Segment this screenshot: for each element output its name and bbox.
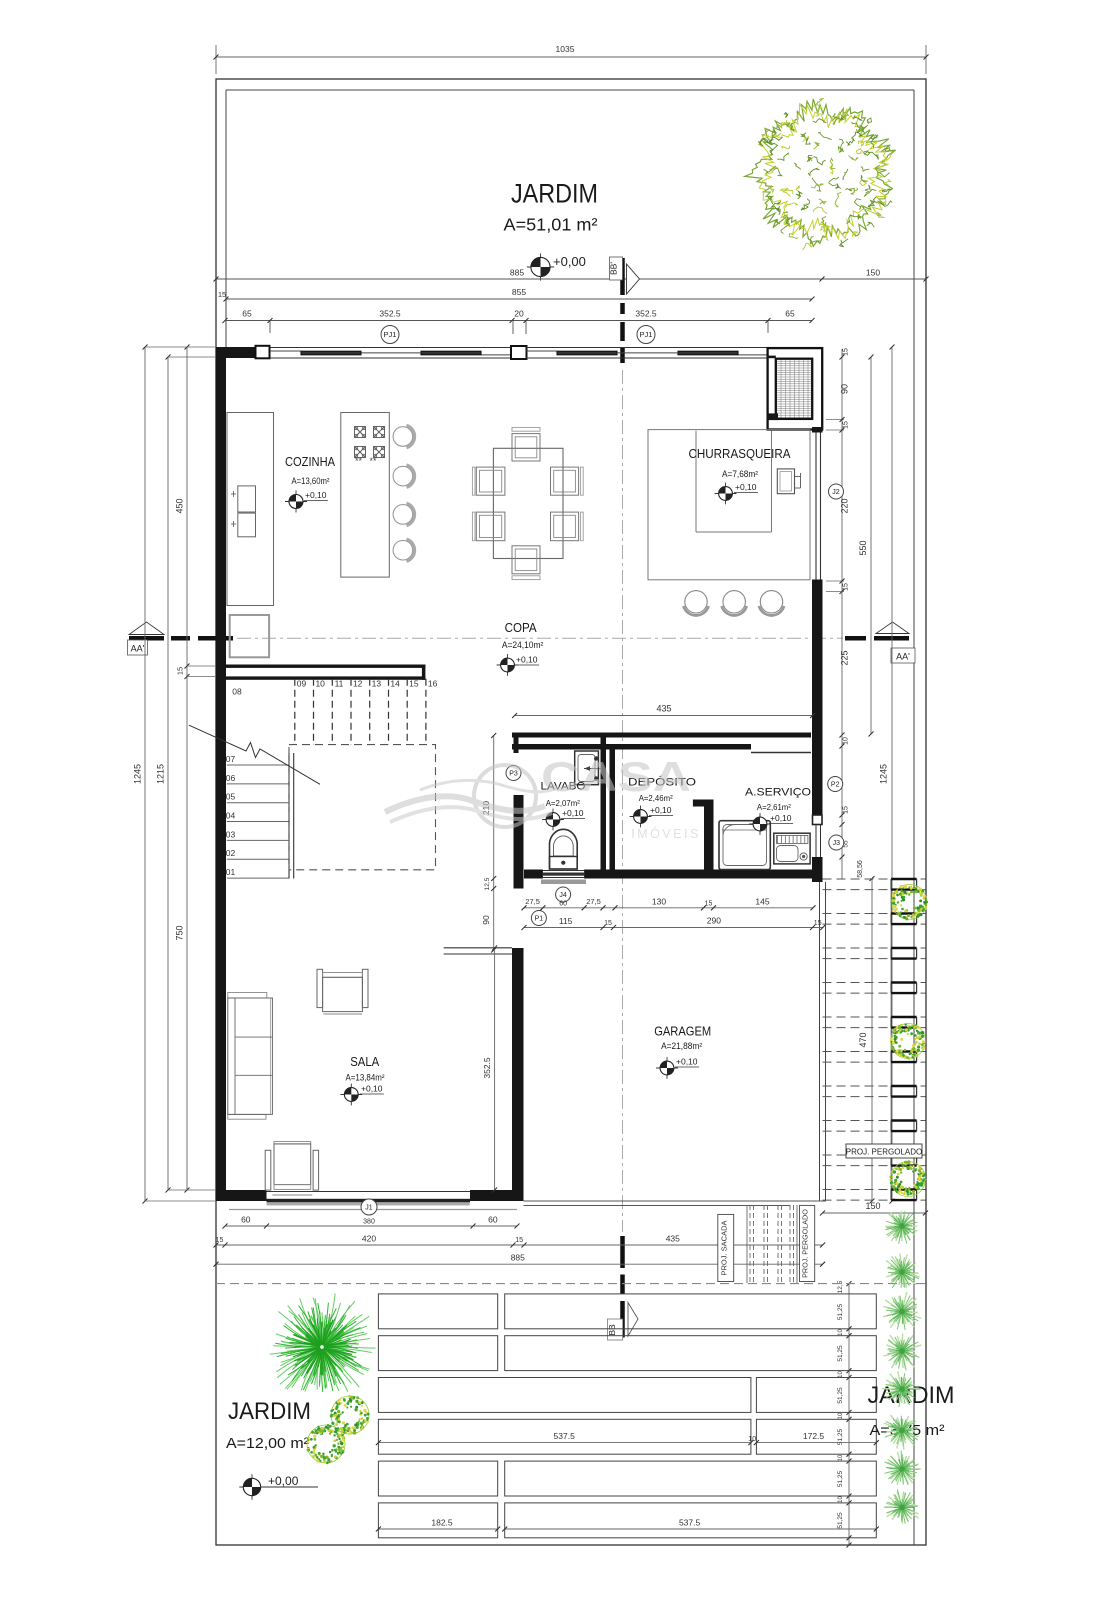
svg-text:15: 15 — [814, 920, 822, 927]
svg-text:15: 15 — [705, 901, 713, 908]
svg-text:537.5: 537.5 — [679, 1518, 701, 1528]
svg-text:150: 150 — [865, 1201, 880, 1211]
svg-text:470: 470 — [858, 1032, 868, 1047]
svg-text:**: ** — [355, 456, 363, 466]
svg-text:51,25: 51,25 — [837, 1387, 844, 1404]
svg-text:JARDIM: JARDIM — [511, 179, 598, 209]
svg-text:J3: J3 — [833, 840, 841, 847]
svg-text:1245: 1245 — [133, 764, 143, 784]
svg-text:352.5: 352.5 — [482, 1057, 492, 1079]
svg-text:27,5: 27,5 — [586, 897, 601, 906]
svg-text:65: 65 — [242, 309, 252, 319]
svg-text:02: 02 — [226, 848, 236, 858]
svg-text:05: 05 — [226, 792, 236, 802]
svg-text:51,25: 51,25 — [837, 1512, 844, 1529]
svg-text:07: 07 — [226, 754, 236, 764]
svg-text:750: 750 — [175, 925, 185, 940]
svg-text:+0,00: +0,00 — [268, 1474, 299, 1488]
svg-text:01: 01 — [226, 867, 236, 877]
svg-text:A=21,88m²: A=21,88m² — [661, 1041, 702, 1051]
svg-text:65: 65 — [785, 309, 795, 319]
svg-text:A.SERVIÇO: A.SERVIÇO — [745, 787, 811, 799]
svg-text:20: 20 — [514, 309, 524, 319]
svg-text:08: 08 — [232, 687, 242, 697]
svg-text:+0,10: +0,10 — [562, 808, 584, 818]
svg-text:CASA: CASA — [541, 753, 691, 800]
svg-text:13: 13 — [372, 679, 382, 689]
svg-text:IMÓVEIS: IMÓVEIS — [631, 826, 701, 841]
svg-text:435: 435 — [666, 1234, 680, 1244]
svg-text:+0,10: +0,10 — [650, 805, 672, 815]
svg-text:AA': AA' — [131, 644, 145, 654]
svg-text:58,56: 58,56 — [857, 860, 864, 878]
svg-text:+0,10: +0,10 — [770, 813, 792, 823]
svg-text:PJ1: PJ1 — [640, 330, 653, 339]
svg-text:51,25: 51,25 — [837, 1345, 844, 1362]
svg-text:225: 225 — [840, 650, 850, 665]
svg-text:J4: J4 — [559, 892, 567, 899]
svg-text:09: 09 — [297, 679, 307, 689]
svg-text:GARAGEM: GARAGEM — [654, 1024, 711, 1039]
svg-text:90: 90 — [840, 384, 850, 394]
svg-text:115: 115 — [559, 916, 573, 926]
svg-text:10: 10 — [748, 1436, 756, 1443]
svg-text:PROJ. PERGOLADO: PROJ. PERGOLADO — [801, 1209, 810, 1278]
svg-text:12: 12 — [353, 679, 363, 689]
svg-text:12,5: 12,5 — [484, 877, 491, 890]
svg-text:+0,10: +0,10 — [676, 1057, 698, 1067]
svg-text:60: 60 — [559, 901, 567, 908]
svg-text:450: 450 — [175, 498, 185, 513]
svg-text:10: 10 — [838, 1496, 844, 1503]
svg-text:P1: P1 — [535, 916, 544, 923]
svg-text:SALA: SALA — [350, 1054, 379, 1069]
svg-text:15: 15 — [843, 348, 850, 356]
svg-text:J1: J1 — [365, 1205, 373, 1212]
svg-text:855: 855 — [512, 287, 526, 297]
svg-text:10: 10 — [843, 737, 850, 745]
svg-text:537.5: 537.5 — [554, 1431, 576, 1441]
svg-text:15: 15 — [409, 679, 419, 689]
svg-text:A=13,60m²: A=13,60m² — [292, 476, 330, 486]
svg-text:PROJ. PERGOLADO: PROJ. PERGOLADO — [846, 1148, 922, 1157]
svg-text:PJ1: PJ1 — [384, 330, 397, 339]
svg-text:10: 10 — [315, 679, 325, 689]
svg-text:**: ** — [369, 456, 377, 466]
svg-text:J2: J2 — [832, 489, 840, 496]
svg-text:290: 290 — [707, 916, 721, 926]
svg-text:380: 380 — [363, 1219, 375, 1226]
svg-text:1245: 1245 — [879, 764, 889, 784]
svg-text:435: 435 — [656, 704, 671, 714]
svg-text:COPA: COPA — [505, 620, 537, 635]
svg-text:60: 60 — [241, 1215, 251, 1225]
svg-text:51,25: 51,25 — [837, 1303, 844, 1320]
svg-text:04: 04 — [226, 811, 236, 821]
svg-text:1035: 1035 — [556, 44, 575, 54]
svg-text:A=2,61m²: A=2,61m² — [757, 802, 791, 812]
svg-text:15: 15 — [216, 1237, 224, 1244]
svg-text:BB': BB' — [609, 262, 619, 275]
svg-text:16: 16 — [428, 679, 438, 689]
svg-text:885: 885 — [510, 268, 524, 278]
svg-text:11: 11 — [335, 679, 344, 689]
svg-text:27,5: 27,5 — [525, 897, 540, 906]
svg-text:145: 145 — [755, 897, 769, 907]
svg-text:+0,10: +0,10 — [516, 655, 538, 665]
svg-text:10: 10 — [838, 1371, 844, 1378]
svg-text:1215: 1215 — [156, 764, 166, 784]
svg-text:A=12,00 m²: A=12,00 m² — [226, 1435, 309, 1452]
svg-text:A=24,10m²: A=24,10m² — [502, 640, 544, 650]
svg-text:+0,10: +0,10 — [361, 1084, 383, 1094]
svg-text:550: 550 — [858, 540, 868, 555]
svg-text:P2: P2 — [831, 782, 840, 789]
svg-text:A=7,68m²: A=7,68m² — [722, 469, 758, 479]
svg-text:172.5: 172.5 — [803, 1431, 825, 1441]
svg-text:14: 14 — [390, 679, 400, 689]
svg-text:PROJ. SACADA: PROJ. SACADA — [719, 1220, 728, 1275]
svg-text:10: 10 — [838, 1329, 844, 1336]
svg-text:90: 90 — [481, 915, 491, 925]
svg-text:P3: P3 — [509, 771, 518, 778]
svg-text:+0,00: +0,00 — [553, 254, 586, 269]
svg-text:352.5: 352.5 — [635, 309, 657, 319]
svg-text:130: 130 — [652, 897, 666, 907]
svg-text:15: 15 — [218, 290, 226, 299]
svg-text:COZINHA: COZINHA — [285, 454, 335, 469]
svg-text:12,5: 12,5 — [837, 1280, 844, 1293]
svg-text:AA': AA' — [896, 652, 910, 662]
svg-text:JARDIM: JARDIM — [228, 1398, 311, 1425]
svg-text:10: 10 — [838, 1412, 844, 1419]
svg-text:15: 15 — [843, 421, 850, 429]
svg-text:CHURRASQUEIRA: CHURRASQUEIRA — [689, 446, 791, 461]
svg-text:150: 150 — [866, 268, 880, 278]
svg-text:60: 60 — [488, 1215, 498, 1225]
svg-text:A=13,84m²: A=13,84m² — [346, 1073, 385, 1083]
svg-text:BB: BB — [607, 1324, 617, 1336]
svg-text:15: 15 — [604, 920, 612, 927]
svg-text:220: 220 — [840, 498, 850, 513]
svg-text:15: 15 — [843, 806, 850, 814]
svg-text:06: 06 — [226, 773, 236, 783]
svg-text:10: 10 — [838, 1454, 844, 1461]
svg-text:51,25: 51,25 — [837, 1470, 844, 1487]
svg-text:352.5: 352.5 — [379, 309, 401, 319]
svg-text:182.5: 182.5 — [431, 1518, 453, 1528]
svg-text:03: 03 — [226, 829, 236, 839]
svg-text:+0,10: +0,10 — [305, 490, 327, 500]
svg-text:+0,10: +0,10 — [735, 482, 757, 492]
svg-text:15: 15 — [843, 583, 850, 591]
svg-text:885: 885 — [511, 1253, 525, 1263]
svg-text:15: 15 — [515, 1237, 523, 1244]
svg-text:15: 15 — [176, 667, 185, 675]
svg-text:A=51,01 m²: A=51,01 m² — [504, 215, 598, 235]
svg-text:420: 420 — [362, 1234, 376, 1244]
